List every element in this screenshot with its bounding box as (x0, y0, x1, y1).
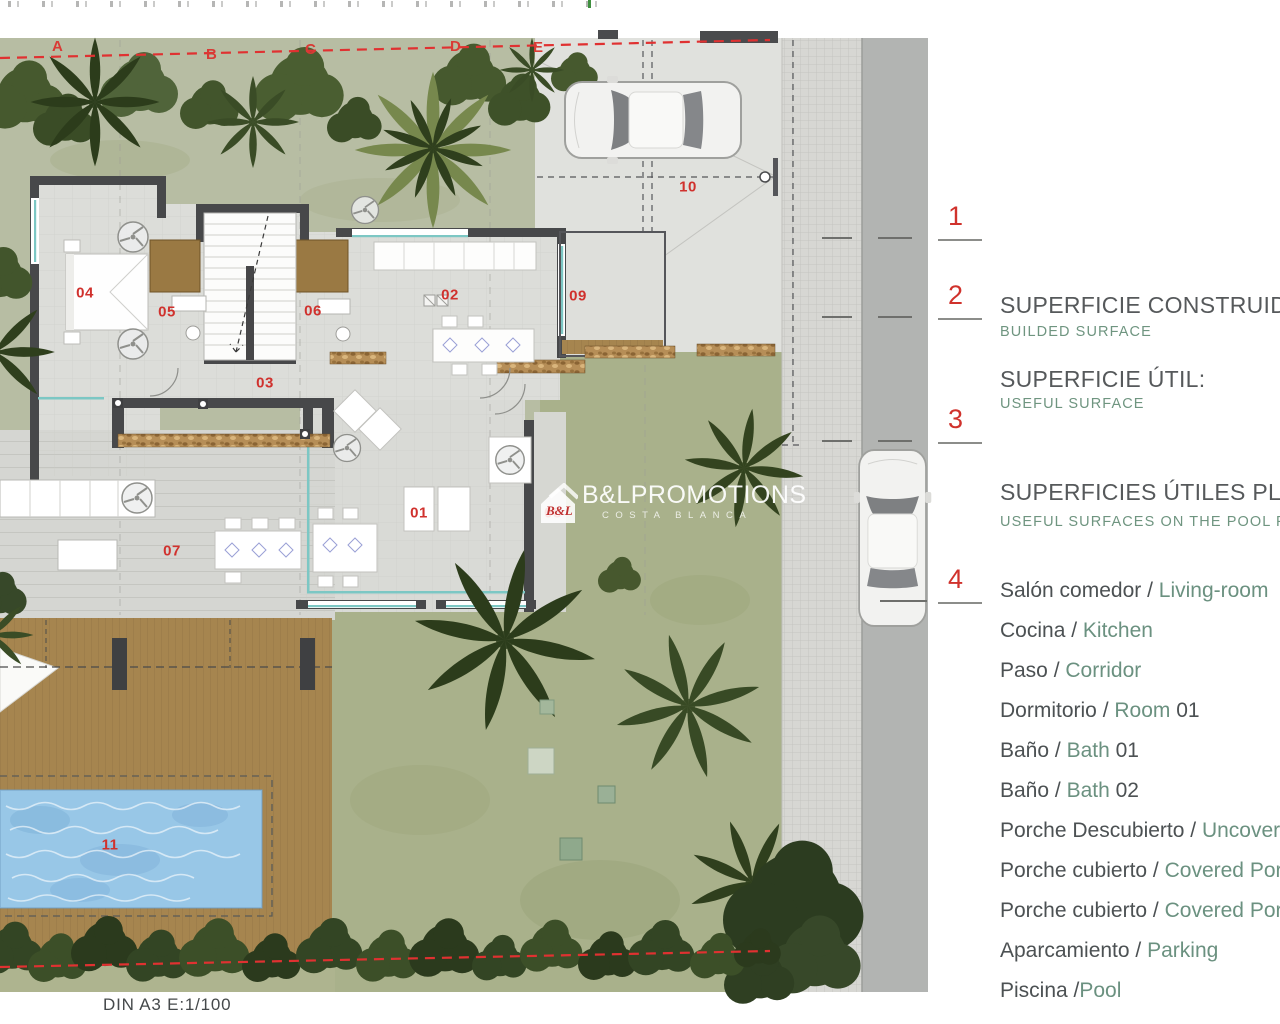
gate-post (773, 158, 778, 196)
shrub-planter (560, 838, 582, 860)
pergola-post (112, 638, 127, 690)
ceiling-fan-icon (118, 329, 148, 359)
shrub-planter (540, 700, 554, 714)
ceiling-fan-icon (352, 197, 379, 224)
floorplan-page: ABCDE 0102030405060708091011 1234 B&L B&… (0, 0, 1280, 1024)
pool (0, 776, 272, 916)
parked-car (565, 76, 741, 164)
wardrobe (296, 240, 348, 292)
shrub-planter (598, 786, 615, 803)
street-car (854, 450, 931, 626)
wardrobe (150, 240, 200, 292)
dining-table (313, 524, 377, 572)
marker-underlines (938, 240, 982, 603)
ceiling-fan-icon (496, 446, 525, 475)
shrub-planter (528, 748, 554, 774)
sofa (438, 487, 470, 531)
site-plan-drawing (0, 0, 1280, 1024)
ceiling-fan-icon (122, 483, 152, 513)
bed (66, 254, 148, 330)
kitchen-counter (374, 242, 536, 270)
sofa (404, 487, 434, 531)
bath-sink (172, 296, 206, 311)
pergola-post (300, 638, 315, 690)
gate-hinge-symbol (760, 172, 770, 182)
toilet (186, 326, 200, 340)
toilet (336, 327, 350, 341)
bath-sink (318, 299, 350, 314)
ceiling-fan-icon (118, 222, 148, 252)
ceiling-fan-icon (334, 435, 361, 462)
